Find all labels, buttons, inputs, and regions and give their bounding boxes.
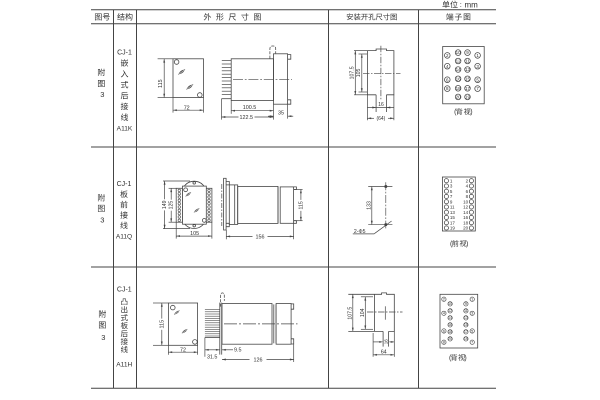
svg-text:3: 3 <box>471 312 473 316</box>
svg-text:3: 3 <box>101 333 105 342</box>
svg-text:4: 4 <box>466 184 469 189</box>
svg-text:16: 16 <box>456 76 462 81</box>
svg-text:17: 17 <box>464 330 468 334</box>
svg-text:4: 4 <box>443 312 445 316</box>
svg-text:CJ-1: CJ-1 <box>117 181 132 188</box>
svg-text:15: 15 <box>450 215 456 220</box>
svg-text:107.5: 107.5 <box>349 66 355 79</box>
svg-text:18: 18 <box>463 220 469 225</box>
svg-text:6: 6 <box>466 189 469 194</box>
svg-text:10: 10 <box>463 199 469 204</box>
svg-text:6: 6 <box>443 329 445 333</box>
svg-text:12: 12 <box>456 59 462 64</box>
svg-text:9: 9 <box>465 302 467 306</box>
svg-text:20: 20 <box>463 226 469 231</box>
svg-text:8: 8 <box>466 194 469 199</box>
svg-text:17: 17 <box>450 220 456 225</box>
svg-text:105: 105 <box>356 68 362 77</box>
svg-text:5: 5 <box>476 77 479 82</box>
svg-text:12: 12 <box>448 309 452 313</box>
svg-text:CJ-1: CJ-1 <box>117 50 132 57</box>
svg-text:122.5: 122.5 <box>240 115 254 121</box>
svg-text:2-Φ5: 2-Φ5 <box>354 229 366 235</box>
svg-text:3: 3 <box>450 184 453 189</box>
svg-text:2: 2 <box>443 297 445 301</box>
svg-text:9: 9 <box>450 199 453 204</box>
svg-text:9.5: 9.5 <box>234 348 242 354</box>
svg-text:20: 20 <box>448 337 452 341</box>
svg-text:115: 115 <box>298 201 304 209</box>
svg-text:18: 18 <box>456 86 462 91</box>
svg-text:A11Q: A11Q <box>116 234 132 241</box>
svg-text:A11H: A11H <box>116 362 132 369</box>
svg-text:107.5: 107.5 <box>348 307 354 320</box>
svg-text::: : <box>460 0 462 9</box>
svg-text:11: 11 <box>450 205 455 210</box>
svg-text:5: 5 <box>450 189 453 194</box>
svg-text:9: 9 <box>466 50 469 55</box>
svg-text:15: 15 <box>465 76 471 81</box>
svg-text:4: 4 <box>446 64 449 69</box>
svg-text:35: 35 <box>278 110 284 116</box>
svg-text:2: 2 <box>446 53 449 58</box>
svg-text:64: 64 <box>381 350 387 356</box>
svg-text:19: 19 <box>450 226 456 231</box>
svg-text:72: 72 <box>180 348 186 354</box>
svg-text:1: 1 <box>471 297 473 301</box>
svg-text:mm: mm <box>465 0 479 9</box>
svg-text:10: 10 <box>456 50 462 55</box>
svg-text:133: 133 <box>367 201 373 210</box>
svg-text:11: 11 <box>464 309 468 313</box>
svg-text:13: 13 <box>465 67 471 72</box>
svg-text:14: 14 <box>463 210 469 215</box>
svg-text:31.5: 31.5 <box>207 355 218 361</box>
svg-text:8: 8 <box>446 86 449 91</box>
svg-text:7: 7 <box>476 86 479 91</box>
svg-text:): ) <box>464 355 466 362</box>
svg-text:16: 16 <box>383 339 388 345</box>
svg-text:16: 16 <box>378 102 384 108</box>
svg-text:156: 156 <box>256 234 265 240</box>
svg-text:(64): (64) <box>376 116 385 122</box>
svg-text:A11K: A11K <box>117 126 133 133</box>
svg-text:19: 19 <box>464 337 468 341</box>
svg-text:115: 115 <box>158 79 164 88</box>
svg-text:1: 1 <box>450 178 453 183</box>
svg-text:2: 2 <box>466 178 469 183</box>
svg-text:100.5: 100.5 <box>243 105 257 111</box>
svg-text:CJ-1: CJ-1 <box>117 287 132 294</box>
svg-text:16: 16 <box>463 215 469 220</box>
svg-text:115: 115 <box>159 320 165 329</box>
svg-text:20: 20 <box>456 94 462 99</box>
svg-text:14: 14 <box>448 316 452 320</box>
svg-text:18: 18 <box>448 330 452 334</box>
svg-text:16: 16 <box>448 323 452 327</box>
svg-text:17: 17 <box>465 86 471 91</box>
svg-text:149: 149 <box>162 200 168 209</box>
svg-text:19: 19 <box>465 94 471 99</box>
svg-text:13: 13 <box>464 316 468 320</box>
svg-text:104: 104 <box>360 308 366 317</box>
svg-text:126: 126 <box>254 357 263 363</box>
svg-text:10: 10 <box>448 302 452 306</box>
svg-text:14: 14 <box>456 67 462 72</box>
svg-text:125: 125 <box>169 201 175 210</box>
svg-text:72: 72 <box>184 106 190 112</box>
svg-text:7: 7 <box>471 340 473 344</box>
svg-text:8: 8 <box>443 340 445 344</box>
svg-text:7: 7 <box>450 194 453 199</box>
svg-text:3: 3 <box>100 216 104 225</box>
svg-text:1: 1 <box>476 53 479 58</box>
svg-text:): ) <box>470 109 472 116</box>
svg-text:12: 12 <box>463 205 469 210</box>
svg-text:105: 105 <box>190 231 199 237</box>
svg-text:3: 3 <box>100 90 104 99</box>
svg-text:5: 5 <box>471 329 473 333</box>
svg-text:6: 6 <box>446 77 449 82</box>
svg-text:13: 13 <box>450 210 456 215</box>
svg-text:15: 15 <box>464 323 468 327</box>
svg-text:3: 3 <box>476 64 479 69</box>
svg-text:): ) <box>466 241 468 248</box>
svg-text:11: 11 <box>465 59 470 64</box>
